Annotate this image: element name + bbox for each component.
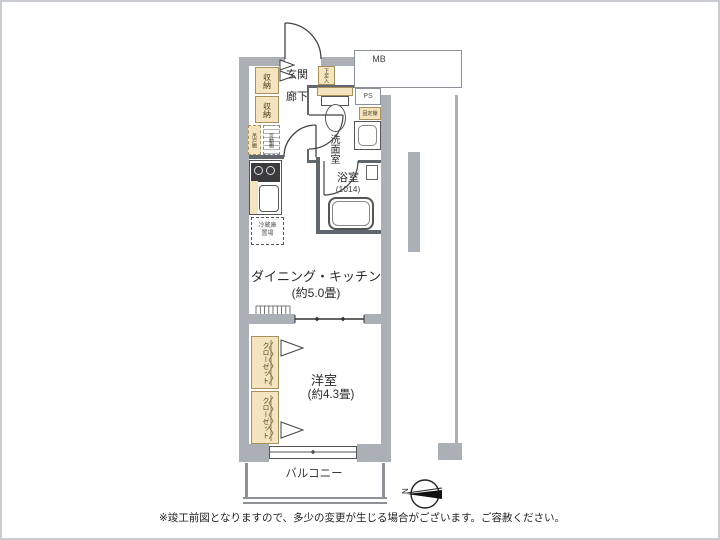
wall-bathroom-bottom bbox=[316, 230, 381, 234]
wall-washroom-left-lower bbox=[307, 149, 309, 160]
storage-box-2: 収納 bbox=[255, 96, 279, 123]
bathtub-inner bbox=[332, 201, 370, 226]
wall-top-right bbox=[321, 57, 354, 66]
wall-left bbox=[239, 57, 249, 446]
toilet-cabinet bbox=[317, 87, 353, 96]
wall-top-left bbox=[239, 57, 285, 66]
wall-bathroom-top-right bbox=[358, 160, 381, 163]
wall-bottom-left bbox=[239, 444, 269, 462]
storage-box-1: 収納 bbox=[255, 67, 279, 94]
dk-size-label: (約5.0畳) bbox=[226, 287, 406, 300]
balcony-rail-left bbox=[245, 463, 248, 499]
meter-box-label: MB bbox=[364, 55, 394, 65]
washer-pan-inner bbox=[358, 125, 377, 146]
wall-bathroom-left bbox=[316, 157, 320, 234]
entrance-label: 玄関 bbox=[286, 69, 308, 81]
bedroom-label: 洋室 bbox=[274, 374, 374, 388]
balcony-rail-bottom-outer bbox=[243, 502, 387, 504]
pipe-space-label: PS bbox=[355, 88, 381, 105]
entrance-door-swing bbox=[285, 23, 321, 59]
dk-label: ダイニング・キッチン bbox=[226, 270, 406, 284]
hanging-cabinet: 吊戸棚 bbox=[248, 125, 261, 155]
toilet-bowl bbox=[325, 104, 346, 132]
north-label: N bbox=[401, 488, 410, 494]
bedroom-size-label: (約4.3畳) bbox=[281, 389, 381, 402]
hallway-label: 廊下 bbox=[286, 91, 308, 103]
washroom-label: 洗面室 bbox=[327, 130, 340, 168]
bathroom-label: 浴室 bbox=[328, 172, 368, 184]
hall-dk-door-swing bbox=[284, 125, 316, 157]
fridge-space-label-1: 冷蔵庫 bbox=[251, 223, 284, 230]
bathroom-size-label: (1014) bbox=[324, 185, 372, 194]
sink-cabinet bbox=[250, 181, 258, 214]
partition-dk-bedroom-right bbox=[364, 314, 381, 324]
closet-box-2: クローゼット bbox=[251, 391, 279, 444]
footer-note: ※竣工前図となりますので、多少の変更が生じる場合がございます。ご容赦ください。 bbox=[2, 513, 720, 525]
counter-hatch bbox=[256, 306, 290, 314]
balcony-end-block bbox=[438, 443, 462, 460]
shower-shelf bbox=[366, 165, 378, 180]
balcony-label: バルコニー bbox=[254, 468, 374, 481]
shoe-cabinet: 下足入 bbox=[318, 66, 335, 85]
site-boundary-line bbox=[455, 95, 458, 460]
balcony-rail-bottom-inner bbox=[243, 497, 387, 499]
wall-hall-dk bbox=[249, 155, 284, 159]
stove-burner-left bbox=[254, 166, 263, 175]
kitchen-sink bbox=[259, 185, 279, 212]
balcony-rail-right bbox=[382, 463, 385, 499]
fixed-shelf: 固定棚 bbox=[359, 107, 381, 120]
compass: N bbox=[401, 480, 442, 508]
wall-bottom-right bbox=[357, 444, 391, 462]
balcony-window bbox=[269, 446, 357, 459]
sliding-door bbox=[295, 315, 364, 323]
exterior-jog-wall bbox=[408, 152, 420, 252]
floorplan-canvas: MB PS 収納 収納 下足入 玄関 廊下 吊戸棚 可動棚 洗面室 固定棚 浴室… bbox=[0, 0, 720, 540]
fridge-space-label-2: 置場 bbox=[251, 231, 284, 238]
movable-shelf: 可動棚 bbox=[263, 125, 280, 155]
stove-burner-right bbox=[266, 166, 275, 175]
partition-dk-bedroom-left bbox=[249, 314, 295, 324]
